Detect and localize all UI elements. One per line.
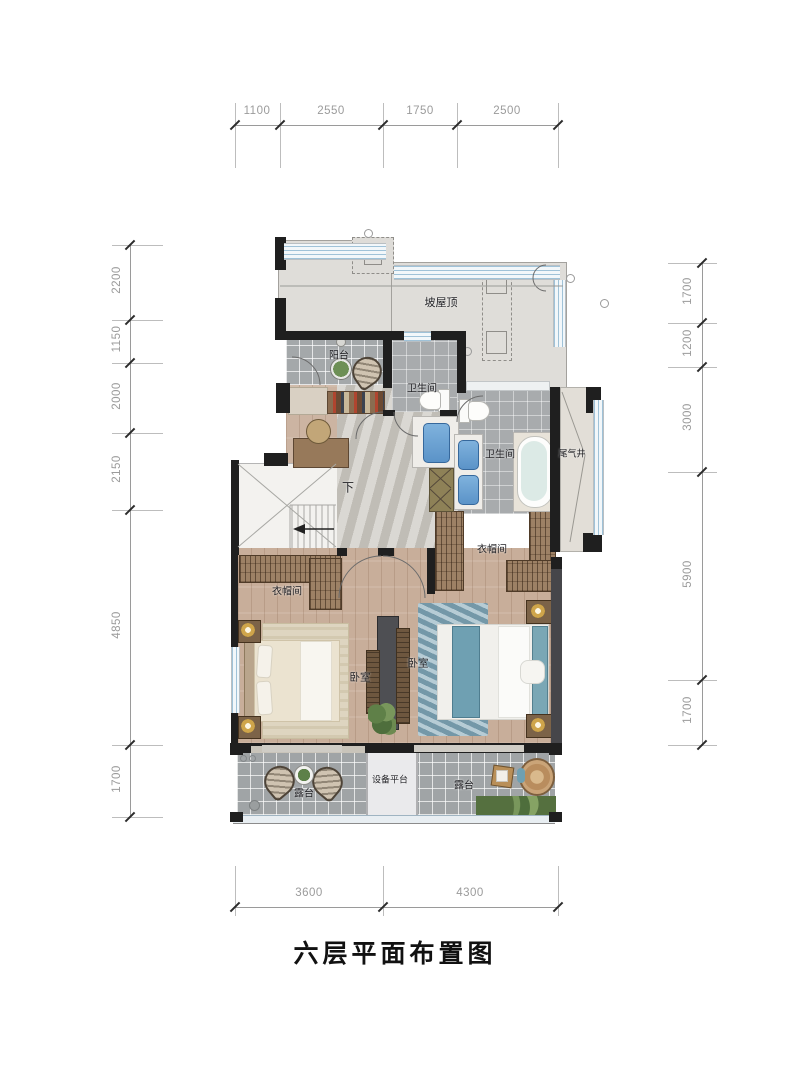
floor-plan-sheet: 坡屋顶 阳台 卫生间 卫生间 尾气井 衣帽间 衣帽间 卧室 卧室 下 设备平台 … (0, 0, 800, 1073)
room-label-exhaust-shaft: 尾气井 (558, 447, 585, 460)
door-arc (394, 412, 418, 436)
shaft-diagonal (562, 392, 585, 542)
room-label-balcony: 阳台 (329, 347, 349, 362)
chute-x-lines (430, 469, 451, 509)
door-arc (457, 396, 483, 422)
room-label-terrace-right: 露台 (454, 777, 474, 792)
stair-lines (238, 464, 336, 548)
room-label-closet-right: 衣帽间 (477, 541, 507, 556)
room-label-closet-left: 衣帽间 (272, 583, 302, 598)
door-arc (383, 556, 425, 598)
room-label-bedroom-left: 卧室 (350, 670, 371, 685)
room-label-terrace-left: 露台 (294, 785, 314, 800)
room-label-bathroom-top: 卫生间 (407, 380, 437, 395)
linework-overlay (0, 0, 800, 1073)
door-arc (292, 357, 320, 385)
room-label-bedroom-right: 卧室 (408, 656, 429, 671)
room-label-roof: 坡屋顶 (425, 294, 458, 310)
room-label-equipment: 设备平台 (372, 773, 408, 786)
room-label-bathroom-right: 卫生间 (485, 446, 515, 461)
door-arc (339, 556, 381, 598)
door-arc (533, 265, 546, 291)
stairs-down-label: 下 (342, 479, 354, 496)
door-arc (356, 412, 383, 439)
drawing-title: 六层平面布置图 (293, 934, 496, 970)
